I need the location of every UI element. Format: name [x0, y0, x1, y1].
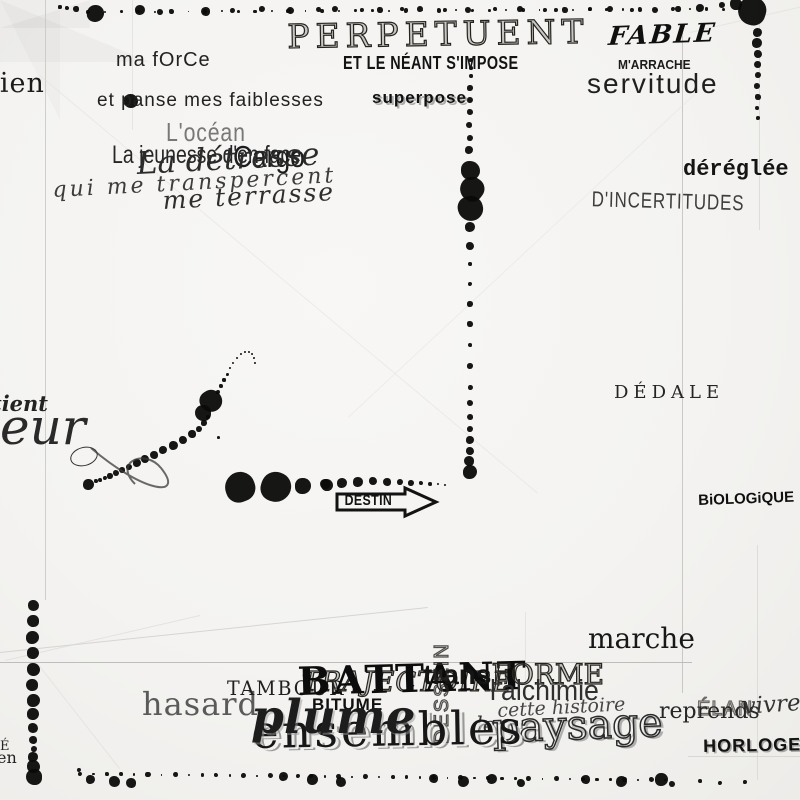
ink-dot	[201, 420, 206, 425]
ink-dot	[201, 773, 205, 777]
ink-dot	[437, 8, 441, 12]
ink-dot	[253, 10, 256, 13]
ink-dot	[259, 6, 265, 12]
ink-dot	[236, 357, 238, 359]
word-biologique: BiOLOGiQUE	[698, 490, 794, 508]
ink-dot	[296, 774, 300, 778]
ink-dot	[638, 7, 642, 11]
ink-dot	[405, 775, 409, 779]
ink-dot	[279, 772, 288, 781]
ink-dot	[468, 385, 473, 390]
ink-dot	[467, 97, 473, 103]
ink-dot	[465, 222, 475, 232]
ink-dot	[78, 772, 83, 777]
ink-dot	[391, 775, 395, 779]
word-destin: DESTIN	[343, 492, 394, 509]
ink-dot	[466, 436, 474, 444]
ink-dot	[493, 7, 498, 12]
ink-dot	[257, 468, 295, 506]
ink-dot	[27, 647, 39, 659]
ink-dot	[652, 7, 658, 13]
ink-dot	[237, 10, 240, 13]
ink-dot	[126, 778, 136, 788]
ink-dot	[295, 478, 311, 494]
ink-dot	[256, 775, 258, 777]
ink-dot	[27, 694, 40, 707]
ink-dot	[517, 779, 525, 787]
ink-dot	[287, 7, 294, 14]
crease-line	[688, 756, 800, 757]
ink-dot	[630, 8, 635, 13]
ink-dot	[371, 9, 374, 12]
ink-dot	[467, 109, 473, 115]
word-perpetuent: PERPETUENT	[287, 15, 590, 53]
ink-dot	[201, 7, 210, 16]
word-marche: marche	[588, 625, 695, 653]
ink-dot	[735, 0, 770, 28]
crease-line	[348, 89, 700, 417]
ink-dot	[324, 775, 326, 777]
ink-dot	[569, 778, 571, 780]
ink-dot	[467, 363, 472, 368]
ink-dot	[469, 74, 473, 78]
ink-dot	[404, 8, 408, 12]
ink-dot	[719, 2, 725, 8]
ink-dot	[222, 378, 225, 381]
ink-dot	[241, 773, 246, 778]
ink-dot	[161, 774, 163, 776]
ink-dot	[514, 777, 516, 779]
ink-dot	[669, 781, 675, 787]
word-dereglee: déréglée	[683, 159, 789, 181]
word-horloge: HORLOGE	[703, 735, 800, 755]
ink-dot	[230, 8, 235, 13]
ink-dot	[705, 7, 709, 11]
ink-dot	[471, 9, 474, 12]
ink-dot	[468, 343, 473, 348]
ink-dot	[58, 5, 61, 8]
ink-dot	[119, 772, 123, 776]
ink-dot	[616, 776, 627, 787]
ink-dot	[447, 777, 449, 779]
ink-dot	[377, 7, 382, 12]
ink-dot	[226, 373, 229, 376]
ink-dot	[417, 6, 423, 12]
ink-dot	[500, 777, 504, 781]
ink-dot	[229, 774, 231, 776]
ink-dot	[336, 777, 346, 787]
ink-dot	[338, 10, 340, 12]
ink-dot	[467, 301, 472, 306]
ink-dot	[595, 778, 599, 782]
ink-dot	[320, 479, 330, 489]
ink-dot	[754, 61, 761, 68]
word-fable: FABLE	[607, 20, 717, 50]
ink-dot	[351, 776, 353, 778]
ink-dot	[419, 776, 421, 778]
ink-dot	[622, 8, 624, 10]
ink-dot	[219, 384, 223, 388]
word-edge-fragment-2: en	[0, 750, 17, 766]
ink-dot	[581, 775, 590, 784]
ink-dot	[689, 8, 691, 10]
ink-dot	[27, 615, 39, 627]
ink-dot	[27, 708, 39, 720]
ink-dot	[444, 484, 446, 486]
paper-fold-wedge	[0, 0, 60, 120]
word-rien: rien	[0, 70, 45, 97]
word-ma-force: ma fOrCe	[116, 50, 211, 70]
ink-dot	[467, 85, 472, 90]
ink-dot	[248, 351, 250, 353]
ink-dot	[217, 436, 220, 439]
ink-dot	[26, 679, 38, 691]
ink-dot	[133, 773, 135, 775]
ink-dot	[465, 146, 474, 155]
ink-dot	[363, 774, 368, 779]
ink-dot	[505, 9, 507, 11]
ink-dot	[251, 353, 253, 355]
word-superpose: superpose	[372, 89, 467, 106]
ink-dot	[655, 773, 668, 786]
ink-dot	[429, 774, 438, 783]
word-dedale: DÉDALE	[614, 384, 724, 402]
ink-dot	[354, 9, 357, 12]
ink-dot	[466, 122, 472, 128]
ink-dot	[756, 116, 760, 120]
ink-dot	[360, 8, 364, 12]
ink-dot	[86, 775, 95, 784]
ink-dot	[755, 94, 760, 99]
ink-dot	[378, 776, 380, 778]
ink-dot	[154, 11, 156, 13]
ink-dot	[369, 477, 377, 485]
ink-dot	[755, 72, 761, 78]
word-servitude: servitude	[587, 70, 719, 98]
ink-dot	[316, 7, 321, 12]
ink-dot	[467, 321, 472, 326]
ink-dot	[26, 769, 42, 785]
ink-dot	[105, 772, 109, 776]
ink-dot	[467, 414, 473, 420]
ink-dot	[455, 9, 457, 11]
word-panse-mes-faiblesses: et panse mes faiblesses	[97, 91, 324, 110]
ink-dot	[443, 8, 448, 13]
ink-dot	[752, 38, 762, 48]
ink-dot	[320, 9, 324, 13]
ink-dot	[754, 50, 762, 58]
ink-dot	[28, 723, 38, 733]
ink-dot	[271, 10, 273, 12]
artwork-canvas: rien tient leur É en ma fOrCe et panse m…	[0, 0, 800, 800]
ink-dot	[609, 778, 612, 781]
ink-dot	[467, 426, 474, 433]
ink-dot	[466, 242, 474, 250]
ink-dot	[488, 9, 491, 12]
ink-dot	[743, 780, 747, 784]
ink-dot	[468, 282, 473, 287]
ink-dot	[458, 776, 469, 787]
ink-dot	[753, 28, 762, 37]
ink-dot	[649, 777, 654, 782]
ink-dot	[221, 468, 259, 506]
ink-dot	[73, 6, 78, 11]
ink-dot	[169, 9, 173, 13]
ink-dot	[240, 353, 242, 355]
ink-dot	[26, 631, 39, 644]
ink-dot	[173, 772, 178, 777]
ink-dot	[268, 773, 273, 778]
ink-dot	[698, 779, 702, 783]
ink-dot	[214, 773, 218, 777]
ink-dot	[465, 7, 472, 14]
ink-dot	[254, 362, 257, 365]
ink-dot	[28, 600, 39, 611]
ink-dot	[542, 778, 544, 780]
ink-dot	[29, 736, 37, 744]
ink-dot	[588, 7, 592, 11]
ink-dot	[307, 774, 318, 785]
word-vivre: vivre	[742, 692, 800, 719]
word-leur: leur	[0, 402, 86, 452]
ink-dot	[232, 362, 235, 365]
ink-dot	[221, 10, 223, 12]
ink-dot	[467, 400, 473, 406]
ink-dot	[718, 781, 723, 786]
word-neant-simpose: ET LE NÉANT S'IMPOSE	[343, 54, 518, 72]
ink-dot	[305, 10, 307, 12]
ink-dot	[109, 776, 120, 787]
ink-dot	[229, 367, 232, 370]
ink-dot	[27, 663, 40, 676]
ink-dot	[463, 465, 477, 479]
ink-dot	[539, 9, 541, 11]
ink-dot	[31, 746, 37, 752]
ink-dot	[637, 779, 639, 781]
ink-dot	[467, 135, 473, 141]
ink-dot	[572, 9, 574, 11]
crease-line	[682, 28, 683, 693]
ink-dot	[468, 262, 472, 266]
word-plume: plume	[251, 694, 416, 741]
ink-dot	[466, 447, 475, 456]
ink-dot	[145, 772, 150, 777]
ink-dot	[487, 774, 497, 784]
ink-dot	[554, 776, 559, 781]
ink-dot	[216, 390, 220, 394]
ink-dot	[607, 6, 613, 12]
ink-dot	[244, 351, 246, 353]
ink-dot	[388, 10, 390, 12]
ink-dot	[473, 777, 475, 779]
ink-dot	[526, 776, 531, 781]
ink-dot	[188, 774, 190, 776]
ink-dot	[675, 6, 680, 11]
crease-line	[45, 0, 46, 600]
ink-dot	[188, 11, 190, 13]
ink-dot	[253, 357, 255, 359]
crease-line	[39, 666, 120, 769]
ink-dot	[696, 4, 704, 12]
word-incertitudes: D'INCERTITUDES	[591, 189, 744, 215]
word-me-terrasse: me terrasse	[162, 179, 336, 213]
ink-dot	[157, 9, 163, 15]
